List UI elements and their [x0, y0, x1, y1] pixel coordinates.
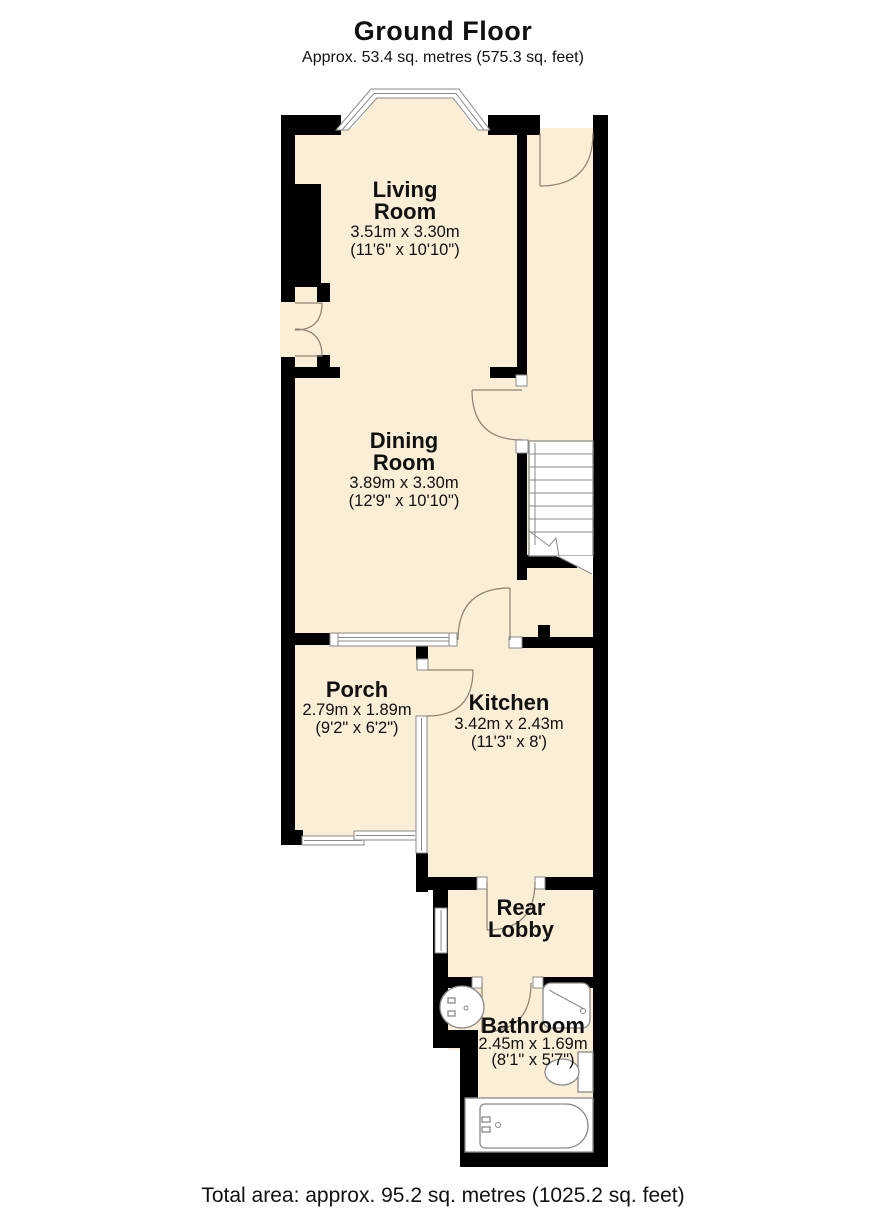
bathtub — [465, 1098, 593, 1152]
svg-text:2.79m x 1.89m: 2.79m x 1.89m — [302, 701, 411, 719]
rear-lobby-label: Rear Lobby — [488, 895, 555, 942]
kitchen-floor — [416, 640, 593, 890]
total-area-text: Total area: approx. 95.2 sq. metres (102… — [0, 1184, 886, 1208]
svg-text:(9'2" x 6'2"): (9'2" x 6'2") — [315, 719, 398, 737]
svg-text:Room: Room — [374, 199, 436, 224]
hallway-wall — [517, 128, 527, 385]
floorplan-page: Ground Floor Approx. 53.4 sq. metres (57… — [0, 0, 886, 1218]
floorplan-svg: Living Room 3.51m x 3.30m (11'6" x 10'10… — [0, 0, 886, 1218]
sink — [440, 986, 484, 1028]
svg-text:Kitchen: Kitchen — [469, 690, 550, 715]
french-door-opening — [280, 302, 296, 357]
bathroom-label: Bathroom 2.45m x 1.69m (8'1" x 5'7") — [478, 1013, 587, 1069]
svg-text:3.51m x 3.30m: 3.51m x 3.30m — [350, 223, 459, 241]
porch-floor — [295, 640, 416, 840]
dining-window — [330, 633, 457, 646]
svg-text:(11'6" x 10'10"): (11'6" x 10'10") — [350, 241, 459, 259]
svg-text:(8'1" x 5'7"): (8'1" x 5'7") — [491, 1051, 574, 1069]
svg-text:Porch: Porch — [326, 677, 388, 702]
chimney-breast — [295, 184, 321, 287]
svg-text:3.89m x 3.30m: 3.89m x 3.30m — [349, 474, 458, 492]
stairs — [528, 441, 593, 575]
svg-text:(11'3" x 8'): (11'3" x 8') — [471, 733, 547, 751]
svg-text:(12'9" x 10'10"): (12'9" x 10'10") — [349, 492, 460, 510]
svg-text:Room: Room — [373, 450, 435, 475]
svg-text:Lobby: Lobby — [488, 917, 555, 942]
svg-text:3.42m x 2.43m: 3.42m x 2.43m — [454, 715, 563, 733]
